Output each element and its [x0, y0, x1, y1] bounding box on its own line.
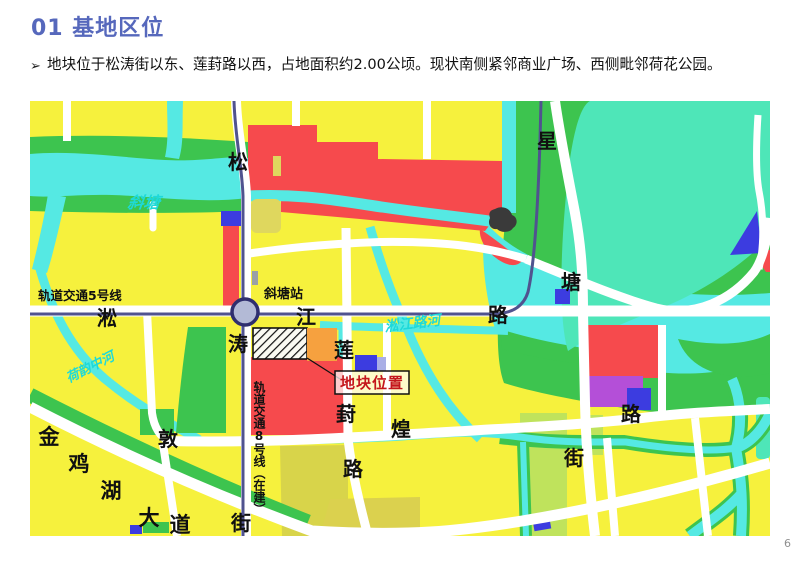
zoning-map: 地块位置 松 涛 街 淞 江 路 星 塘 路 莲 葑 路 敦 煌 街 金 鸡 湖… [30, 101, 770, 536]
label-songjiang-2: 江 [296, 305, 316, 329]
site-plot-hatched [253, 328, 307, 359]
label-jinjihu-3: 湖 [101, 479, 122, 503]
label-lianfeng-3: 路 [343, 457, 364, 481]
label-songjiang-1: 淞 [97, 306, 117, 330]
metro-line5-label: 轨道交通5号线 [38, 288, 122, 303]
label-xingtang-1: 星 [537, 129, 557, 153]
lavender-block [377, 357, 386, 371]
blue-block [355, 355, 377, 371]
label-songtao-1: 松 [228, 150, 248, 174]
road-stub-marker [252, 271, 258, 285]
site-callout-label: 地块位置 [340, 374, 404, 392]
bullet-text: 地块位于松涛街以东、莲葑路以西，占地面积约2.00公顷。现状南侧紧邻商业广场、西… [47, 55, 771, 74]
page-title: 01 基地区位 [31, 10, 164, 42]
metro-line8-label-box: 轨道交通8号线（在建） [253, 381, 279, 536]
metro-line8-label: 轨道交通8号线（在建） [253, 381, 265, 515]
label-dunhuang-1: 敦 [158, 427, 179, 451]
label-dunhuang-3: 街 [563, 446, 584, 470]
label-jinjihu-4: 大 [139, 506, 160, 530]
slide-canvas: 01 基地区位 ➢ 地块位于松涛街以东、莲葑路以西，占地面积约2.00公顷。现状… [0, 0, 800, 566]
label-lianfeng-1: 莲 [334, 338, 354, 362]
label-xingtang-2: 塘 [561, 270, 581, 294]
label-jinjihu-5: 道 [170, 513, 191, 536]
label-xingtang-3: 路 [621, 402, 642, 426]
label-songjiang-3: 路 [488, 303, 509, 327]
label-jinjihu-1: 金 [38, 425, 61, 449]
label-dunhuang-2: 煌 [391, 417, 411, 441]
metro-station-circle [232, 299, 258, 325]
orange-block [307, 328, 337, 361]
bullet-arrow-icon: ➢ [30, 59, 41, 74]
river-label-xietang: 斜塘 [126, 193, 164, 212]
station-label: 斜塘站 [263, 286, 303, 302]
label-songtao-2: 涛 [228, 332, 248, 356]
label-songtao-3: 街 [230, 511, 251, 535]
page-number: 6 [784, 537, 791, 550]
label-jinjihu-2: 鸡 [68, 452, 90, 476]
label-lianfeng-2: 葑 [336, 402, 356, 426]
zoning-map-svg: 地块位置 松 涛 街 淞 江 路 星 塘 路 莲 葑 路 敦 煌 街 金 鸡 湖… [30, 101, 770, 536]
